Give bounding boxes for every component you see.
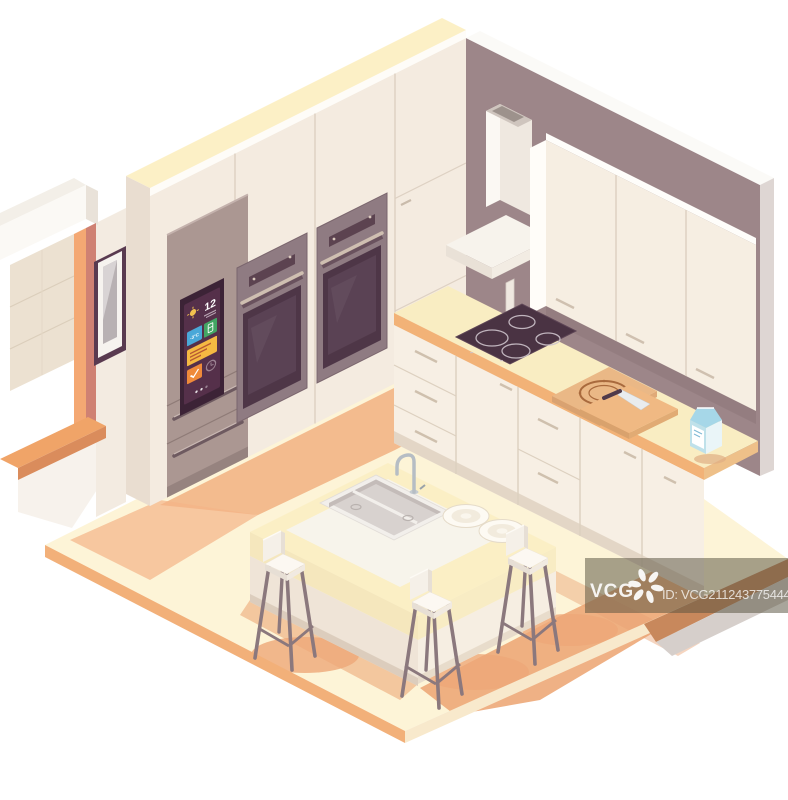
upper-cab-side [530,140,546,314]
cabinet-side [126,176,150,506]
watermark-id: ID: VCG211243775444 [662,587,788,602]
watermark-brand: VCG [590,581,634,602]
watermark: VCG ID: VCG211243775444 [585,558,788,613]
wall-outer-band [760,178,774,476]
hood-duct-side [486,104,500,207]
kitchen-illustration: 12 -3°C [0,0,788,800]
window-jamb [74,228,86,437]
isometric-kitchen-scene: 12 -3°C [0,0,788,800]
plate [443,505,489,528]
fridge-touchscreen[interactable]: 12 -3°C [184,287,220,405]
milk-shadow [694,454,726,464]
smart-refrigerator: 12 -3°C [167,195,248,498]
picture-frame [94,246,126,366]
cornice-side [86,185,98,225]
